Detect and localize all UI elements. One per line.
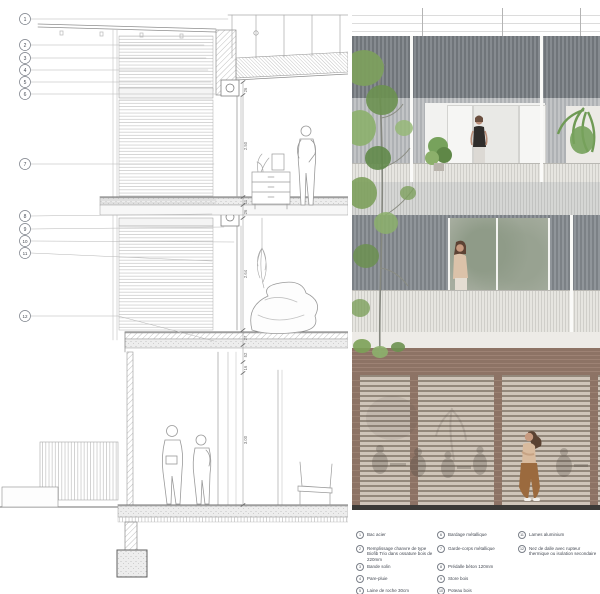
callout-number: 10 bbox=[22, 239, 28, 244]
legend-item-number: 11 bbox=[518, 531, 526, 539]
legend-item: 7 Garde-corps métallique bbox=[437, 545, 517, 553]
legend-item-number: 3 bbox=[356, 563, 364, 571]
legend-item: 11 Lames aluminium bbox=[518, 531, 598, 539]
sheet: 26 2.50 11 26 2.64 27 52 16 3.00 1 2 bbox=[0, 0, 600, 594]
dim-label: 27 bbox=[243, 335, 248, 340]
legend-item-number: 12 bbox=[518, 545, 526, 553]
balcony-plants bbox=[425, 108, 594, 171]
callout-number: 9 bbox=[24, 227, 27, 233]
floor-slab-lower bbox=[125, 332, 348, 352]
legend-item: 1 Bac acier bbox=[356, 531, 436, 539]
legend-item-number: 7 bbox=[437, 545, 445, 553]
callout-bubbles: 1 2 3 4 5 6 7 8 9 10 11 12 bbox=[20, 14, 31, 322]
facade-cladding-lines bbox=[113, 29, 117, 340]
legend-item: 10 Poteau bois bbox=[437, 587, 517, 594]
callout-number: 5 bbox=[24, 80, 27, 86]
facade-render bbox=[352, 8, 600, 510]
legend-item-text: Lames aluminium bbox=[529, 531, 564, 539]
legend-item-text: Pare-pluie bbox=[367, 575, 388, 583]
foundation bbox=[0, 505, 348, 577]
dim-label: 26 bbox=[243, 209, 248, 214]
chair bbox=[298, 462, 332, 505]
callout-number: 7 bbox=[24, 162, 27, 168]
callout-number: 6 bbox=[24, 92, 27, 98]
foreground-tree bbox=[352, 50, 416, 358]
hanging-plant bbox=[257, 218, 266, 288]
dim-label: 26 bbox=[243, 87, 248, 92]
legend-item-text: Nez de dalle avec rupteur thermique ou i… bbox=[529, 545, 598, 557]
woman-middle bbox=[453, 241, 468, 290]
dim-label: 16 bbox=[243, 365, 248, 370]
legend-item-number: 8 bbox=[437, 563, 445, 571]
legend-item-number: 2 bbox=[356, 545, 364, 553]
legend-item: 6 Bardage métallique bbox=[437, 531, 517, 539]
legend-item-text: Bardage métallique bbox=[448, 531, 487, 539]
legend-item-number: 9 bbox=[437, 575, 445, 583]
dresser bbox=[252, 154, 290, 209]
legend-item: 3 Bande solin bbox=[356, 563, 436, 571]
section-drawing: 26 2.50 11 26 2.64 27 52 16 3.00 1 2 bbox=[0, 0, 348, 594]
legend-item-text: Poteau bois bbox=[448, 587, 472, 594]
roof-railing bbox=[228, 15, 348, 58]
left-fence bbox=[2, 442, 118, 507]
legend-item-number: 5 bbox=[356, 587, 364, 594]
legend-item-number: 1 bbox=[356, 531, 364, 539]
callout-number: 8 bbox=[24, 214, 27, 220]
dim-label: 11 bbox=[243, 199, 248, 204]
callout-number: 2 bbox=[24, 43, 27, 49]
legend-item-text: Bac acier bbox=[367, 531, 386, 539]
legend-item: 9 Store bois bbox=[437, 575, 517, 583]
legend-item-text: Garde-corps métallique bbox=[448, 545, 495, 553]
legend-item: 8 Prédalle béton 120mm bbox=[437, 563, 517, 571]
legend-item-text: Remplissage chanvre de type Biofib Trio … bbox=[367, 545, 436, 563]
bean-bag bbox=[251, 282, 318, 333]
person-upper bbox=[297, 126, 315, 205]
callout-number: 12 bbox=[22, 314, 28, 319]
legend-item-number: 10 bbox=[437, 587, 445, 594]
legend-item-text: Laine de roche 30cm bbox=[367, 587, 409, 594]
dim-label: 3.00 bbox=[243, 435, 248, 444]
legend-item: 4 Pare-pluie bbox=[356, 575, 436, 583]
woman-ground bbox=[519, 431, 542, 501]
legend-item: 12 Nez de dalle avec rupteur thermique o… bbox=[518, 545, 598, 557]
cafe-silhouettes bbox=[366, 396, 588, 478]
legend-item-text: Bande solin bbox=[367, 563, 391, 571]
callout-number: 3 bbox=[24, 56, 27, 62]
louver-panels bbox=[119, 36, 213, 330]
roof-buildup bbox=[236, 52, 348, 80]
people-ground bbox=[162, 426, 210, 505]
callout-number: 4 bbox=[24, 68, 27, 74]
legend-item: 5 Laine de roche 30cm bbox=[356, 587, 436, 594]
render-figures bbox=[352, 8, 600, 510]
callout-number: 11 bbox=[23, 251, 28, 256]
dim-label: 2.50 bbox=[243, 141, 248, 150]
legend-item-number: 6 bbox=[437, 531, 445, 539]
dimension-line: 26 2.50 11 26 2.64 27 52 16 3.00 bbox=[241, 81, 248, 507]
dim-label: 2.64 bbox=[243, 269, 248, 278]
legend-item-number: 4 bbox=[356, 575, 364, 583]
legend-item: 2 Remplissage chanvre de type Biofib Tri… bbox=[356, 545, 436, 563]
callout-number: 1 bbox=[24, 17, 27, 23]
legend-item-text: Prédalle béton 120mm bbox=[448, 563, 493, 571]
dim-label: 52 bbox=[243, 352, 248, 357]
woman-upper bbox=[471, 116, 487, 164]
legend-item-text: Store bois bbox=[448, 575, 468, 583]
